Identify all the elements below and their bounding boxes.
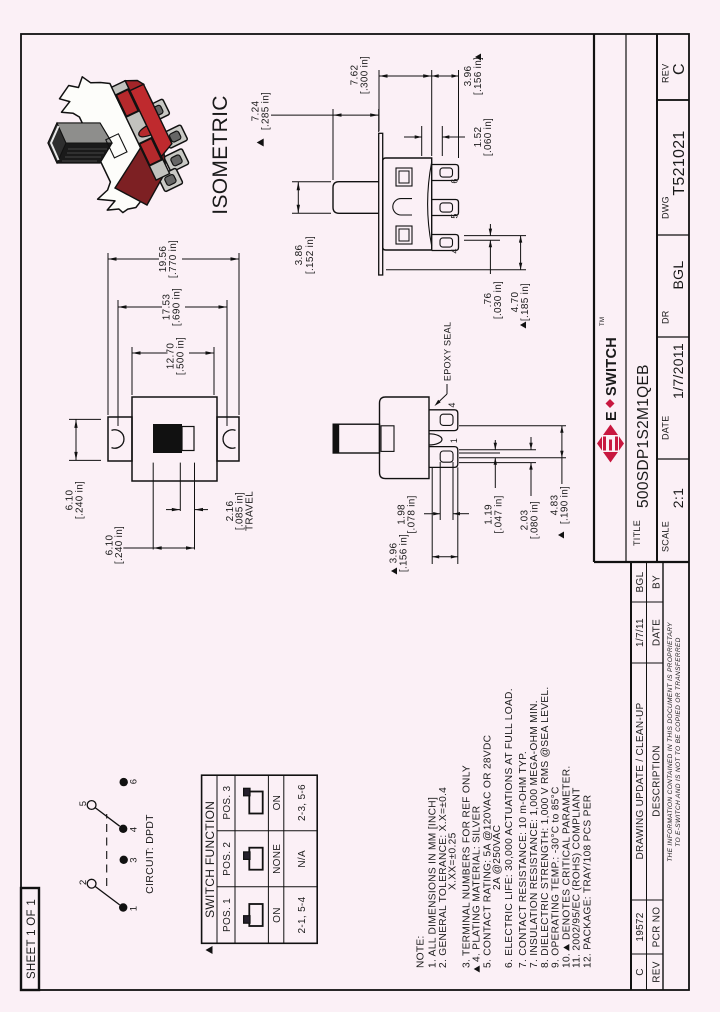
svg-text:12. PACKAGE: TRAY/108 PCS PER: 12. PACKAGE: TRAY/108 PCS PER [582,795,593,968]
svg-text:PCR NO: PCR NO [651,907,662,948]
svg-text:REV: REV [651,961,662,982]
svg-text:1. ALL DIMENSIONS IN MM [INCH]: 1. ALL DIMENSIONS IN MM [INCH] [428,797,439,968]
svg-text:2-3, 5-6: 2-3, 5-6 [297,784,308,821]
svg-text:[.030 in]: [.030 in] [493,281,504,319]
svg-text:THE INFORMATION CONTAINED IN T: THE INFORMATION CONTAINED IN THIS DOCUME… [667,622,674,862]
svg-text:[.690 in]: [.690 in] [171,288,182,326]
svg-text:6: 6 [450,178,460,183]
svg-text:2:1: 2:1 [670,488,686,508]
svg-text:ISOMETRIC: ISOMETRIC [209,95,232,214]
svg-text:DESCRIPTION: DESCRIPTION [651,745,662,817]
svg-text:CIRCUIT: DPDT: CIRCUIT: DPDT [144,814,156,894]
svg-text:[.285 in]: [.285 in] [260,92,271,130]
svg-text:1/7/11: 1/7/11 [635,618,646,647]
svg-text:SWITCH: SWITCH [604,337,620,396]
svg-text:[.156 in]: [.156 in] [473,57,484,95]
svg-text:DATE: DATE [651,619,662,646]
svg-text:[.240 in]: [.240 in] [74,481,85,519]
svg-text:6. ELECTRIC LIFE: 30,000 ACTUA: 6. ELECTRIC LIFE: 30,000 ACTUATIONS AT F… [504,688,515,968]
svg-text:9. OPERATING TEMP.: -30°C to 8: 9. OPERATING TEMP.: -30°C to 85°C [550,786,561,968]
svg-text:SWITCH FUNCTION: SWITCH FUNCTION [203,801,217,918]
svg-text:3.86: 3.86 [294,245,305,266]
svg-text:POS. 3: POS. 3 [222,785,233,819]
svg-text:[.080 in]: [.080 in] [529,501,540,539]
svg-text:DATE: DATE [661,415,671,440]
svg-text:4. PLATING MATERIAL: SILVER: 4. PLATING MATERIAL: SILVER [472,806,483,962]
svg-text:EPOXY SEAL: EPOXY SEAL [443,322,453,381]
svg-text:C: C [635,968,646,976]
svg-text:ON: ON [272,795,283,811]
svg-text:TM: TM [600,317,606,326]
svg-text:[.078 in]: [.078 in] [406,495,417,533]
svg-text:19572: 19572 [635,912,646,941]
svg-text:N/A: N/A [297,850,308,868]
svg-text:NONE: NONE [272,844,283,874]
svg-text:2: 2 [78,879,89,885]
svg-text:4: 4 [447,402,457,407]
svg-text:6: 6 [129,779,140,785]
svg-text:500SDP1S2M1QEB: 500SDP1S2M1QEB [635,364,652,508]
svg-text:TO E-SWITCH AND IS NOT TO BE C: TO E-SWITCH AND IS NOT TO BE COPIED OR T… [675,637,682,846]
svg-text:[.047 in]: [.047 in] [493,495,504,533]
svg-text:11. 2002/95/EC (ROHS) COMPLIAN: 11. 2002/95/EC (ROHS) COMPLIANT [572,787,583,968]
svg-text:TRAVEL: TRAVEL [244,491,255,531]
svg-text:[.300 in]: [.300 in] [359,56,370,94]
svg-text:[.190 in]: [.190 in] [559,486,570,524]
svg-text:TITLE: TITLE [632,520,642,546]
svg-text:2-1, 5-4: 2-1, 5-4 [297,896,308,933]
svg-text:2A @250VAC: 2A @250VAC [492,825,503,890]
svg-text:BGL: BGL [635,571,646,592]
svg-text:SHEET 1 OF 1: SHEET 1 OF 1 [26,899,38,979]
svg-text:POS. 2: POS. 2 [222,842,233,876]
svg-text:1/7/2011: 1/7/2011 [670,343,686,399]
svg-text:[.156 in]: [.156 in] [398,534,409,572]
svg-text:SCALE: SCALE [661,521,671,552]
svg-text:[.500 in]: [.500 in] [175,337,186,375]
svg-text:7. INSULATION RESISTANCE: 1,00: 7. INSULATION RESISTANCE: 1,000 MEGA-OHM… [529,700,540,968]
svg-text:DR: DR [661,310,671,324]
svg-text:1: 1 [449,438,459,443]
svg-text:NOTE:: NOTE: [416,935,427,968]
svg-text:1: 1 [129,906,140,912]
svg-text:4: 4 [450,248,460,253]
svg-text:E: E [604,411,620,421]
svg-text:DRAWING UPDATE / CLEAN-UP: DRAWING UPDATE / CLEAN-UP [635,702,646,859]
svg-text:[.060 in]: [.060 in] [483,118,494,156]
svg-text:C: C [671,63,688,75]
svg-text:7. CONTACT RESISTANCE: 10 m-OH: 7. CONTACT RESISTANCE: 10 m-OHM TYP. [518,751,529,968]
svg-text:5: 5 [78,801,89,807]
svg-text:5: 5 [450,213,460,218]
svg-text:[.770 in]: [.770 in] [168,240,179,278]
svg-text:X.XX=±0.25: X.XX=±0.25 [448,832,459,890]
svg-text:[.152 in]: [.152 in] [305,236,316,274]
svg-text:REV: REV [661,64,671,83]
svg-text:[.240 in]: [.240 in] [114,526,125,564]
svg-text:POS. 1: POS. 1 [222,898,233,932]
svg-text:BGL: BGL [670,261,686,290]
svg-text:BY: BY [651,575,662,589]
svg-text:DWG: DWG [661,196,671,219]
svg-text:4: 4 [129,827,140,833]
svg-text:T521021: T521021 [671,130,688,195]
svg-text:[.185 in]: [.185 in] [520,283,531,321]
svg-text:ON: ON [272,907,283,923]
svg-text:3: 3 [129,857,140,863]
